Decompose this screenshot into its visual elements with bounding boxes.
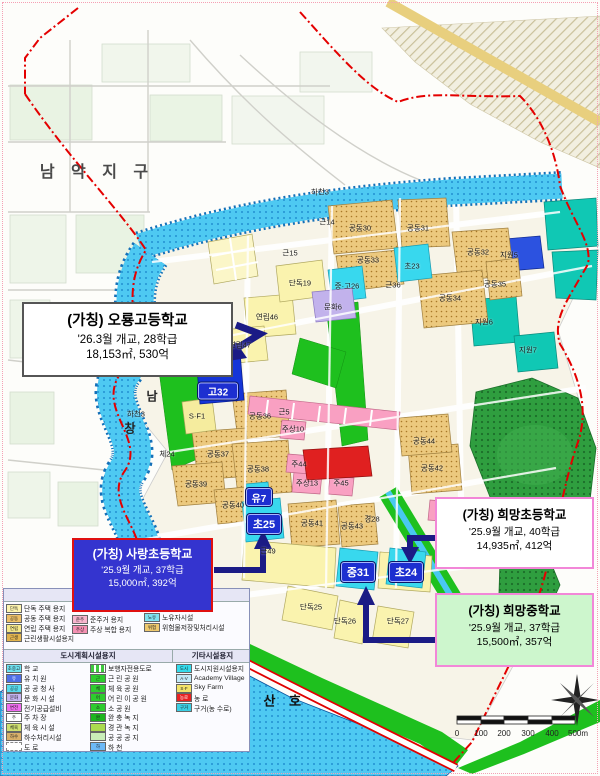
legend-item: 초중고학 교	[6, 664, 88, 673]
callout-line: 14,935㎡, 412억	[437, 539, 592, 553]
school-badge: 초24	[389, 562, 423, 582]
legend-header-row2: 도시계획시설용지 기타시설용지	[4, 649, 249, 663]
legend-item: 공동공동 주택 용지	[6, 614, 70, 623]
legend-swatch	[90, 723, 106, 732]
callout-line: '26.3월 개교, 28학급	[24, 333, 231, 348]
legend-item: 도시도시지원시설용지	[176, 664, 250, 673]
legend-swatch: A·V	[176, 674, 192, 683]
legend-swatch: 근생	[6, 633, 22, 642]
parcel-label: 경28	[364, 514, 379, 525]
legend-swatch: 주상	[72, 625, 88, 634]
legend-item: 하수하수처리시설	[6, 733, 88, 742]
parcel-label: 공동35	[484, 279, 506, 290]
legend-swatch: 체육	[6, 723, 22, 732]
legend-swatch: 농로	[176, 693, 192, 702]
school-badge: 유7	[246, 488, 272, 506]
legend-swatch	[90, 732, 106, 741]
legend-item: A·VAcademy Village	[176, 674, 250, 683]
callout-line: '25.9월 개교, 37학급	[437, 621, 592, 635]
parcel-label: 지원7	[519, 345, 537, 356]
legend-swatch: 위험	[144, 623, 160, 632]
callout-line: 15,000㎡, 392억	[74, 577, 211, 590]
legend-col-a3: 노유노유자시설위험위험물저장및처리시설	[144, 613, 250, 632]
legend-item: 노유노유자시설	[144, 613, 250, 622]
callout-line: '25.9월 개교, 40학급	[437, 525, 592, 539]
scalebar-tick: 100	[474, 729, 487, 738]
legend-item: 도 로	[6, 742, 88, 751]
legend-col-a1: 단독단독 주택 용지공동공동 주택 용지연립연립 주택 용지근생근린생활시설용지	[6, 604, 70, 642]
region-label: 남 악 지 구	[40, 158, 154, 182]
parcel-label: 주상10	[282, 424, 304, 435]
legend-swatch: 공동	[6, 614, 22, 623]
parcel-label: 공동30	[349, 223, 371, 234]
parcel-label: 근49	[260, 546, 275, 557]
parcel-label: 근14	[319, 217, 334, 228]
parcel-label: 공동37	[207, 449, 229, 460]
legend-item: 체체 육 공 원	[90, 684, 174, 693]
callout-title: (가칭) 사랑초등학교	[74, 545, 211, 562]
legend-item: 유유 치 원	[6, 674, 88, 683]
parcel-label: 하천3	[311, 187, 329, 198]
legend-item: 준주준주거 용지	[72, 615, 142, 624]
callout-title: (가칭) 희망중학교	[437, 600, 592, 619]
legend-col-b1: 초중고학 교유유 치 원공공공 공 청 사문화문 화 시 설변전전기공급설비주주…	[6, 664, 88, 751]
parcel-label: 공동36	[249, 411, 271, 422]
legend-swatch: 문화	[6, 693, 22, 702]
callout-huimang-elem: (가칭) 희망초등학교 '25.9월 개교, 40학급 14,935㎡, 412…	[435, 497, 594, 569]
legend-item: 보행자전용도로	[90, 664, 174, 673]
parcel-label: 근36	[385, 280, 400, 291]
scalebar-tick: 300	[521, 729, 534, 738]
parcel-label: 공동33	[357, 255, 379, 266]
legend-item: 주상주상 복합 용지	[72, 625, 142, 634]
parcel-label: 단독26	[334, 616, 356, 627]
parcel-label: 공동34	[439, 293, 461, 304]
legend-swatch: 초중고	[6, 664, 22, 673]
legend-swatch: 어	[90, 693, 106, 702]
school-badge: 고32	[198, 383, 238, 400]
scale-bar	[457, 716, 575, 724]
parcel-label: 지원5	[500, 250, 518, 261]
parcel-label: 공동44	[413, 436, 435, 447]
callout-sarang-elem: (가칭) 사랑초등학교 '25.9월 개교, 37학급 15,000㎡, 392…	[72, 538, 213, 612]
legend-swatch: 연립	[6, 624, 22, 633]
callout-line: 18,153㎡, 530억	[24, 348, 231, 363]
legend-item: 연립연립 주택 용지	[6, 624, 70, 633]
parcel-label: 공동43	[341, 521, 363, 532]
legend-swatch: 체	[90, 684, 106, 693]
parcel-label: 단독19	[289, 278, 311, 289]
legend-item: 변전전기공급설비	[6, 703, 88, 712]
parcel-label: 공동39	[185, 479, 207, 490]
legend-swatch: 도시	[176, 664, 192, 673]
legend-item: 공 공 공 지	[90, 733, 174, 742]
scalebar-tick: 500m	[568, 729, 588, 738]
callout-oryong-high: (가칭) 오룡고등학교 '26.3월 개교, 28학급 18,153㎡, 530…	[22, 302, 233, 377]
parcel-label: 문화6	[324, 302, 342, 313]
region-label: 창	[124, 420, 135, 437]
legend-item: 완완 충 녹 지	[90, 713, 174, 722]
legend-item: 근근 린 공 원	[90, 674, 174, 683]
commercial-parcel	[303, 446, 372, 480]
legend-swatch: 하	[90, 742, 106, 751]
callout-title: (가칭) 희망초등학교	[437, 504, 592, 523]
legend-item: 단독단독 주택 용지	[6, 604, 70, 613]
legend-swatch: 변전	[6, 703, 22, 712]
legend-item: 문화문 화 시 설	[6, 693, 88, 702]
school-badge: 초25	[247, 514, 281, 534]
legend-item: 경 관 녹 지	[90, 723, 174, 732]
legend-item: 소소 공 원	[90, 703, 174, 712]
callout-line: '25.9월 개교, 37학급	[74, 564, 211, 577]
legend-swatch: S·F	[176, 684, 192, 693]
parcel-label: 공동32	[467, 247, 489, 258]
scalebar-tick: 0	[455, 729, 459, 738]
legend-item: 위험위험물저장및처리시설	[144, 623, 250, 632]
legend-swatch: 노유	[144, 613, 160, 622]
legend-panel: 주택건설용지 단독단독 주택 용지공동공동 주택 용지연립연립 주택 용지근생근…	[3, 588, 250, 752]
legend-item: 어어 린 이 공 원	[90, 693, 174, 702]
legend-item: 주주 차 장	[6, 713, 88, 722]
legend-col-a2: 준주준주거 용지주상주상 복합 용지	[72, 615, 142, 634]
callout-title: (가칭) 오룡고등학교	[24, 309, 231, 330]
legend-swatch: 준주	[72, 615, 88, 624]
legend-item: 공공공 공 청 사	[6, 684, 88, 693]
parcel-label: 공동41	[301, 518, 323, 529]
parcel-label: 근15	[282, 248, 297, 259]
legend-item: 체육체 육 시 설	[6, 723, 88, 732]
parcel-label: 공동42	[421, 463, 443, 474]
school-badge: 중31	[341, 562, 375, 582]
legend-swatch: 하수	[6, 732, 22, 741]
region-label: 남	[146, 388, 157, 405]
parcel-label: 초23	[404, 261, 419, 272]
apartment-cluster	[208, 234, 258, 284]
parcel-label: 공동40	[222, 500, 244, 511]
legend-swatch: 공공	[6, 684, 22, 693]
legend-item: 농로농 로	[176, 693, 250, 702]
parcel-label: 주44	[291, 459, 306, 470]
parcel-label: 하천3	[127, 409, 145, 420]
legend-swatch: 주	[6, 713, 22, 722]
scalebar-tick: 200	[497, 729, 510, 738]
legend-swatch: 단독	[6, 604, 22, 613]
parcel-label: 중·고26	[335, 281, 360, 292]
parcel-label: 주상13	[296, 478, 318, 489]
parcel-label: 주45	[333, 478, 348, 489]
callout-huimang-mid: (가칭) 희망중학교 '25.9월 개교, 37학급 15,500㎡, 357억	[435, 593, 594, 667]
legend-item: 구거구거(농 수로)	[176, 703, 250, 712]
callout-line: 15,500㎡, 357억	[437, 635, 592, 649]
legend-swatch	[6, 742, 22, 751]
parcel-label: S·F1	[189, 412, 205, 421]
legend-swatch: 소	[90, 703, 106, 712]
parcel-label: 연립46	[256, 312, 278, 323]
parcel-label: 공동31	[407, 223, 429, 234]
legend-item: 근생근린생활시설용지	[6, 633, 70, 642]
parcel-label: 공동38	[247, 464, 269, 475]
legend-swatch: 근	[90, 674, 106, 683]
parcel-label: 지원6	[475, 317, 493, 328]
legend-swatch: 유	[6, 674, 22, 683]
legend-swatch: 완	[90, 713, 106, 722]
legend-swatch: 구거	[176, 703, 192, 712]
legend-swatch	[90, 664, 106, 673]
map-page: 남 악 지 구영 산 호남창 하천3하천3근14근15공동30공동31공동32공…	[0, 0, 600, 776]
legend-col-b3: 도시도시지원시설용지A·VAcademy VillageS·FSky Farm농…	[176, 664, 250, 712]
parcel-label: 근5	[278, 407, 289, 418]
legend-col-b2: 보행자전용도로근근 린 공 원체체 육 공 원어어 린 이 공 원소소 공 원완…	[90, 664, 174, 751]
legend-item: 하하 천	[90, 742, 174, 751]
legend-item: S·FSky Farm	[176, 684, 250, 693]
scalebar-tick: 400	[545, 729, 558, 738]
parcel-label: 체24	[159, 449, 174, 460]
parcel-label: 단독27	[387, 616, 409, 627]
parcel-label: 단독25	[300, 602, 322, 613]
